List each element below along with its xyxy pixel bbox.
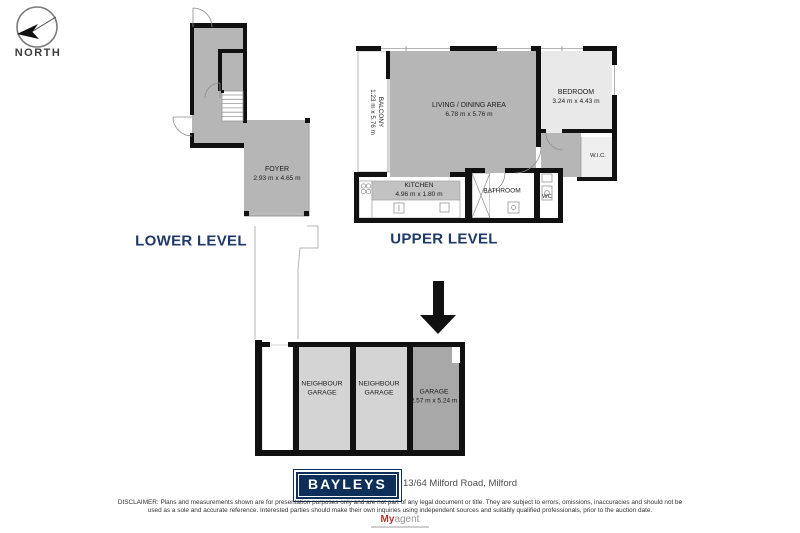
wic-label: W.I.C. <box>590 153 606 159</box>
driveway-outline <box>248 218 324 340</box>
upper-level-plan <box>350 40 622 228</box>
lower-level-plan <box>163 5 323 227</box>
bathroom-label: BATHROOM <box>483 188 521 195</box>
empty-bay <box>262 345 293 452</box>
myagent-logo-light: agent <box>394 514 419 525</box>
floor-plan-page: NORTH <box>0 0 800 533</box>
myagent-logo-bold: My <box>381 514 395 525</box>
living-dining-label: LIVING / DINING AREA 6.78 m x 5.76 m <box>432 101 506 119</box>
garage-door-recess <box>452 347 460 363</box>
down-arrow-icon <box>420 281 456 335</box>
myagent-logo: Myagent <box>0 514 800 528</box>
upper-level-title: UPPER LEVEL <box>390 231 498 248</box>
neighbour-garage-1 <box>299 347 350 450</box>
north-compass-icon <box>10 4 66 50</box>
foyer-label: FOYER 2.93 m x 4.65 m <box>253 165 300 183</box>
lower-level-title: LOWER LEVEL <box>135 233 247 250</box>
disclaimer: DISCLAIMER: Plans and measurements shown… <box>0 499 800 514</box>
disclaimer-line-1: DISCLAIMER: Plans and measurements shown… <box>0 499 800 507</box>
bayleys-logo-text: BAYLEYS <box>308 476 387 492</box>
stairs <box>221 90 243 121</box>
kitchen-label: KITCHEN 4.96 m x 1.80 m <box>395 181 442 199</box>
bedroom-label: BEDROOM 3.24 m x 4.43 m <box>552 88 599 106</box>
balcony-label: BALCONY 1.23 m x 5.76 m <box>368 89 384 135</box>
property-address: 13/64 Milford Road, Milford <box>403 478 517 489</box>
myagent-tagline <box>371 526 429 528</box>
north-label: NORTH <box>9 47 67 59</box>
bayleys-logo: BAYLEYS <box>293 469 402 502</box>
neighbour-garage-2 <box>356 347 407 450</box>
neighbour-garage-2-label: NEIGHBOUR GARAGE <box>354 381 404 398</box>
neighbour-garage-1-label: NEIGHBOUR GARAGE <box>297 381 347 398</box>
wc-label: WC <box>542 194 552 200</box>
garage-label: GARAGE 2.57 m x 5.24 m <box>405 389 463 406</box>
